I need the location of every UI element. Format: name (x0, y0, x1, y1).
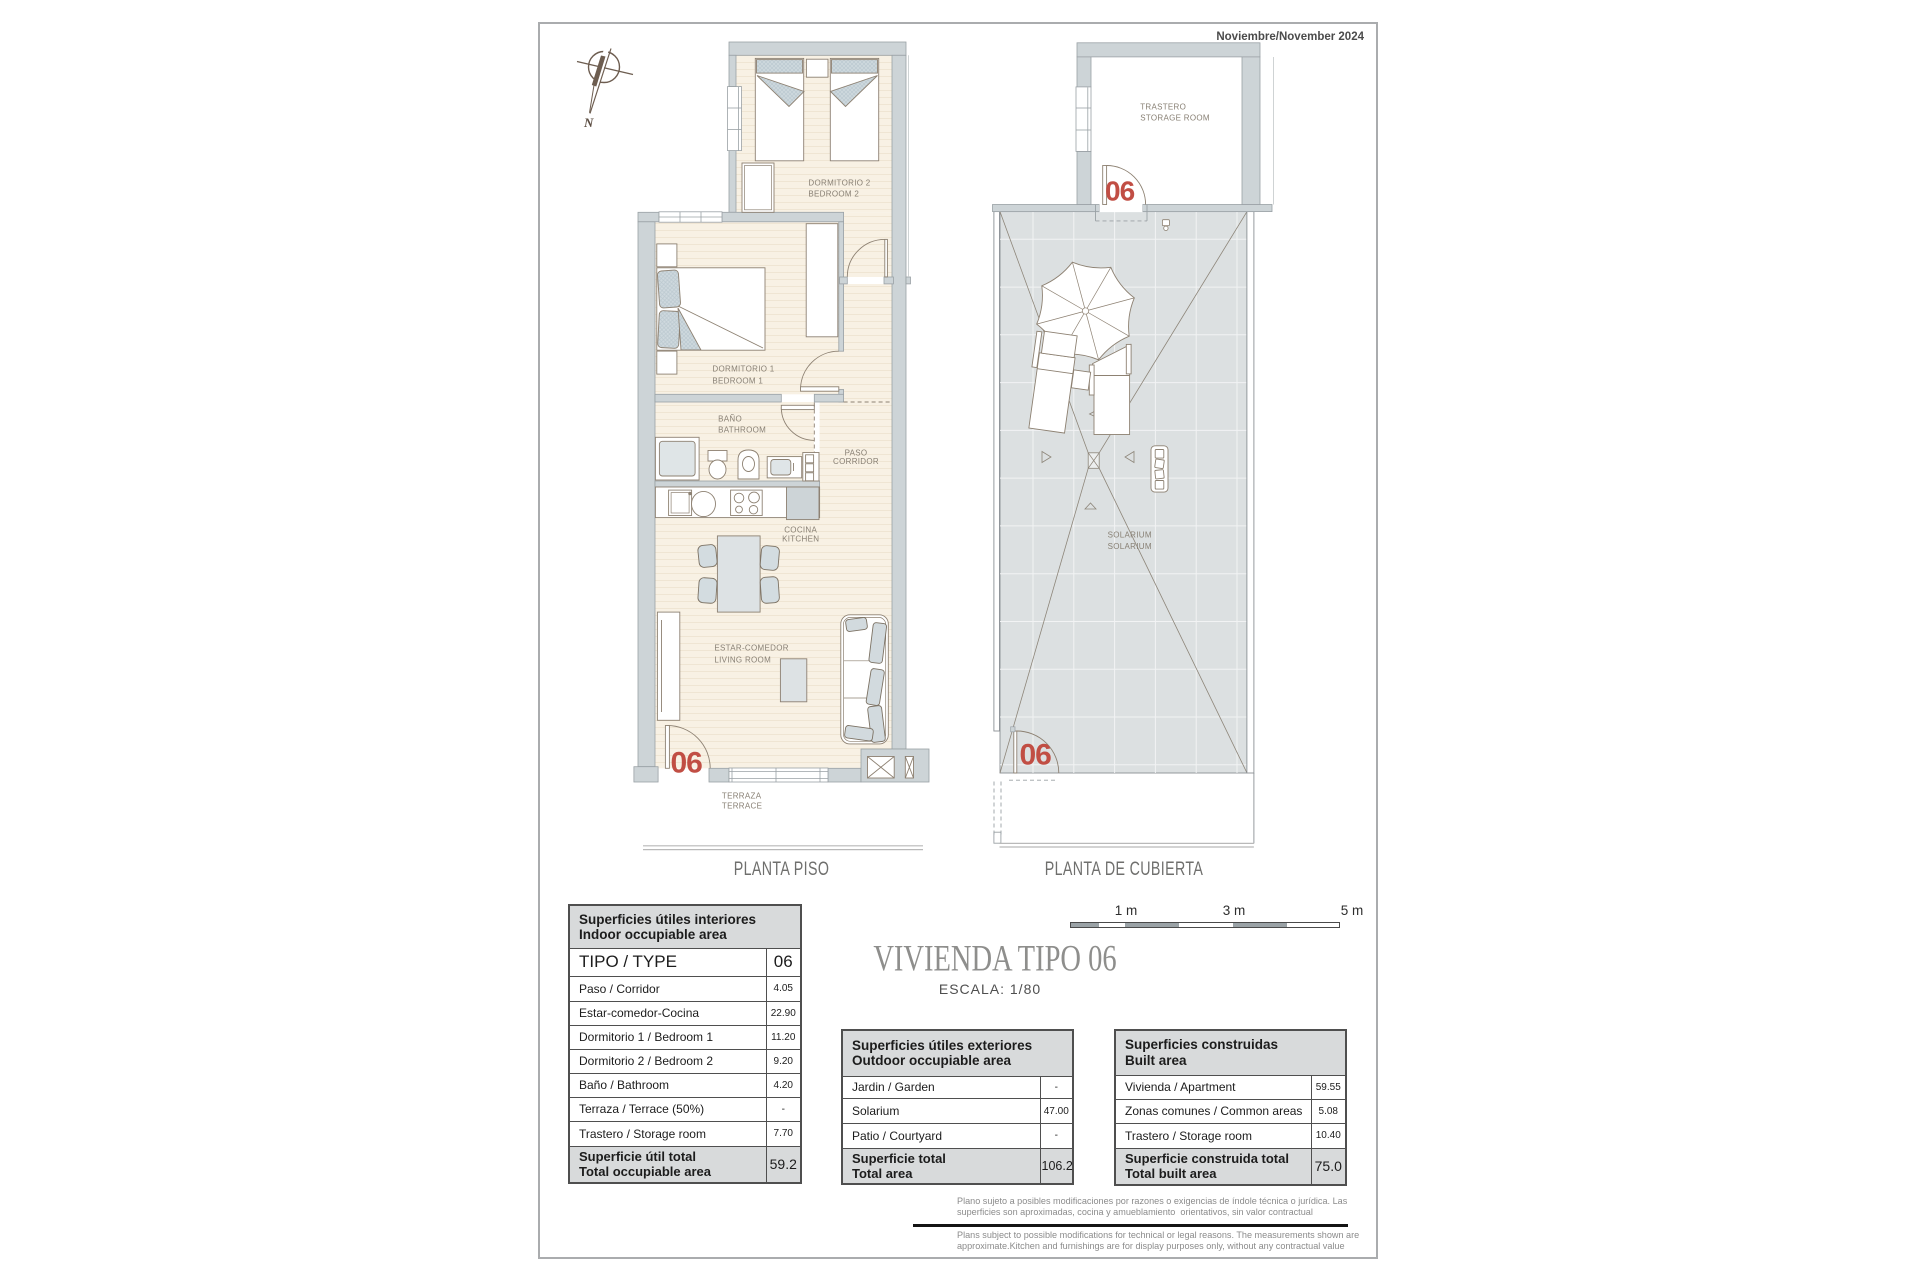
svg-text:STORAGE ROOM: STORAGE ROOM (1140, 114, 1210, 123)
svg-text:TRASTERO: TRASTERO (1140, 103, 1186, 112)
svg-text:LIVING ROOM: LIVING ROOM (714, 656, 771, 665)
svg-text:N: N (583, 115, 594, 130)
svg-text:BAÑO: BAÑO (718, 415, 742, 424)
svg-text:PASO: PASO (845, 448, 868, 457)
svg-text:06: 06 (671, 747, 703, 780)
svg-text:06: 06 (1105, 176, 1135, 207)
svg-text:SOLARIUM: SOLARIUM (1108, 531, 1152, 540)
svg-text:TERRACE: TERRACE (722, 802, 762, 811)
svg-text:DORMITORIO 1: DORMITORIO 1 (712, 365, 774, 374)
svg-text:BEDROOM 1: BEDROOM 1 (712, 377, 763, 386)
svg-text:KITCHEN: KITCHEN (782, 535, 819, 544)
svg-text:SOLARIUM: SOLARIUM (1108, 542, 1152, 551)
svg-text:COCINA: COCINA (784, 526, 817, 535)
svg-text:BEDROOM 2: BEDROOM 2 (808, 190, 859, 199)
svg-text:06: 06 (1020, 739, 1052, 772)
svg-text:CORRIDOR: CORRIDOR (833, 457, 879, 466)
svg-text:ESTAR-COMEDOR: ESTAR-COMEDOR (714, 644, 788, 653)
svg-text:DORMITORIO 2: DORMITORIO 2 (808, 179, 870, 188)
svg-text:BATHROOM: BATHROOM (718, 426, 766, 435)
svg-text:TERRAZA: TERRAZA (722, 792, 762, 801)
